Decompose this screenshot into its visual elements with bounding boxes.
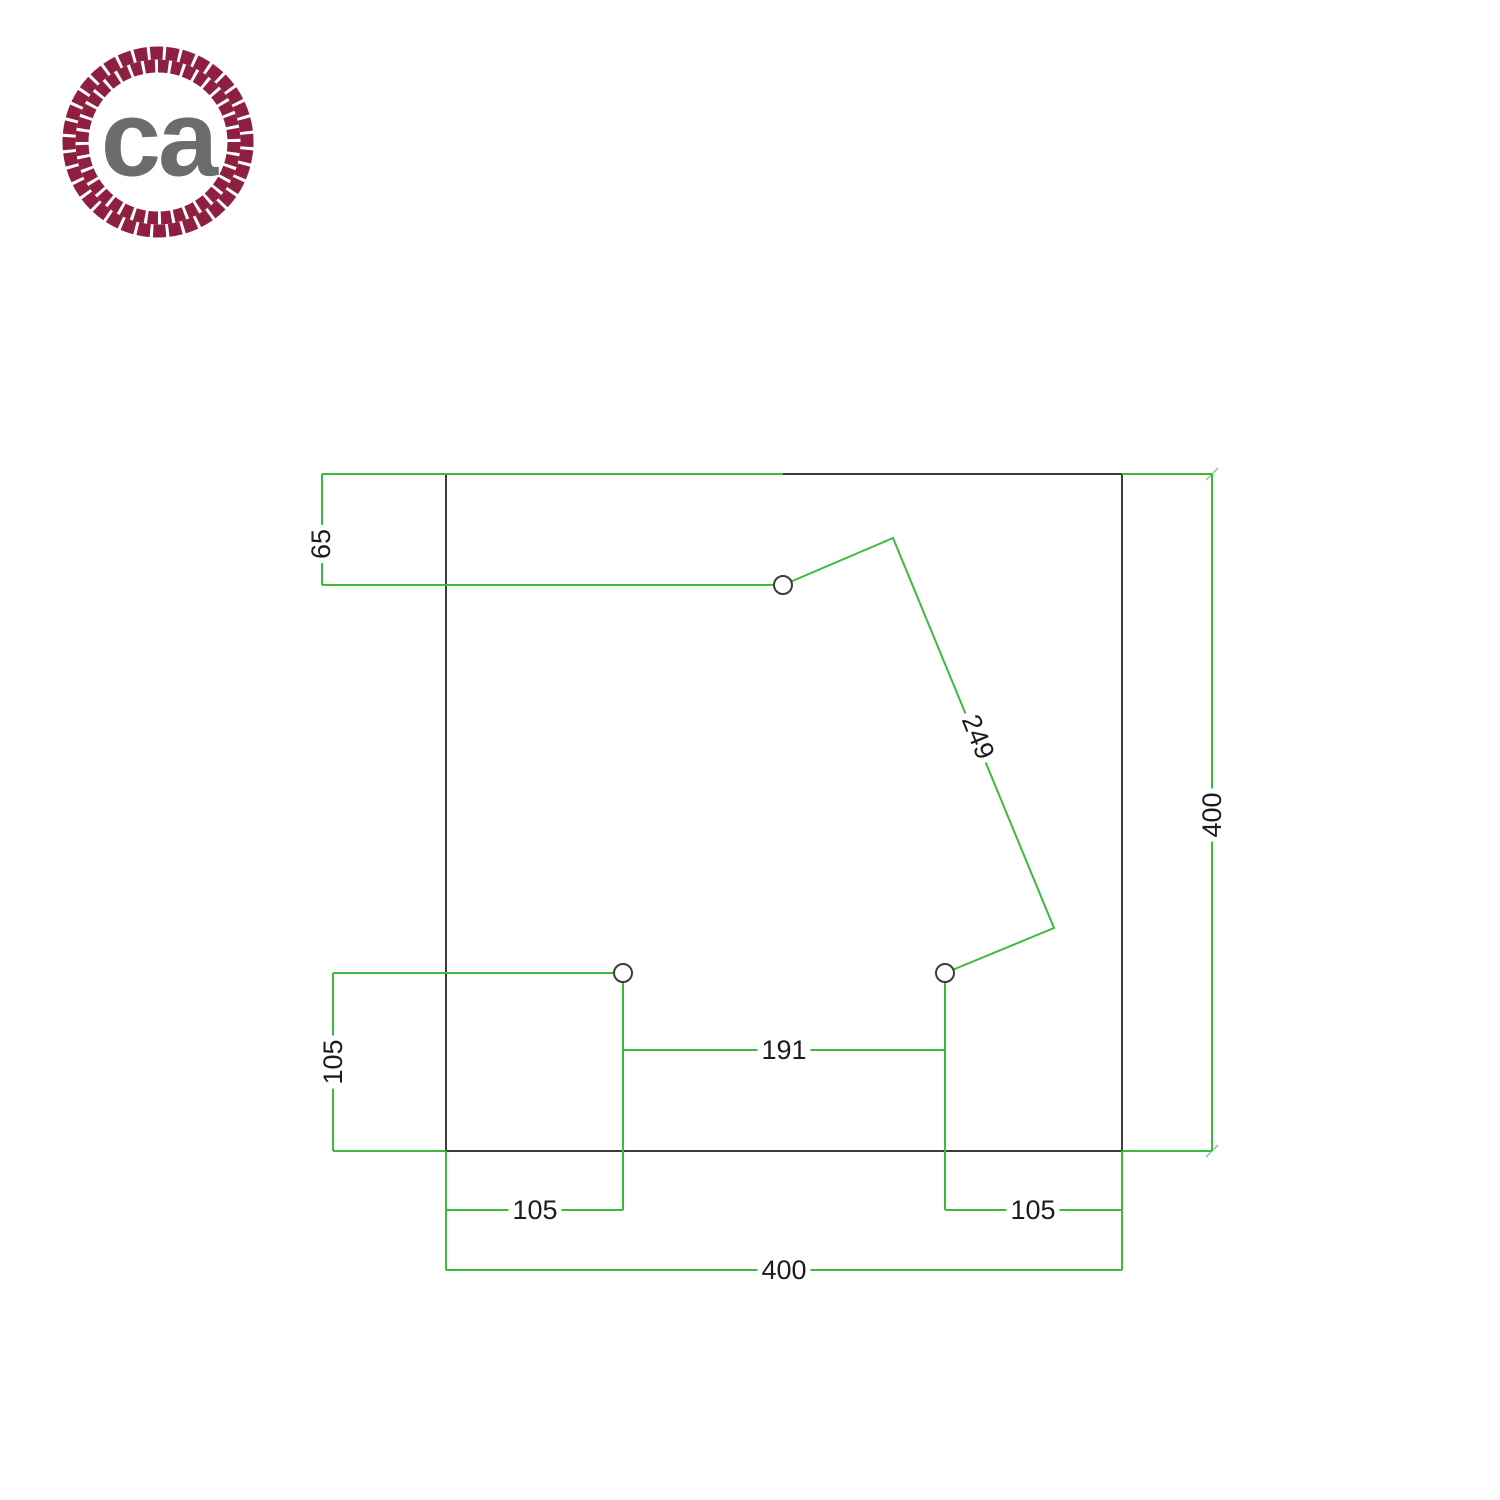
- product-technical-drawing-page: ca: [0, 0, 1500, 1500]
- dim-400-bottom-label: 400: [757, 1255, 810, 1285]
- hole-top: [774, 576, 792, 594]
- dim-65-label: 65: [306, 525, 336, 563]
- hole-bottom-left: [614, 964, 632, 982]
- dim-191-label: 191: [757, 1035, 810, 1065]
- dimension-drawing: [0, 0, 1500, 1500]
- dim-400-right-label: 400: [1197, 788, 1227, 841]
- dim-105-bottom-left-label: 105: [508, 1195, 561, 1225]
- dim-105-bottom-right-label: 105: [1006, 1195, 1059, 1225]
- dim-249-polyline: [783, 538, 1054, 973]
- dim-105-left-label: 105: [318, 1035, 348, 1088]
- hole-bottom-right: [936, 964, 954, 982]
